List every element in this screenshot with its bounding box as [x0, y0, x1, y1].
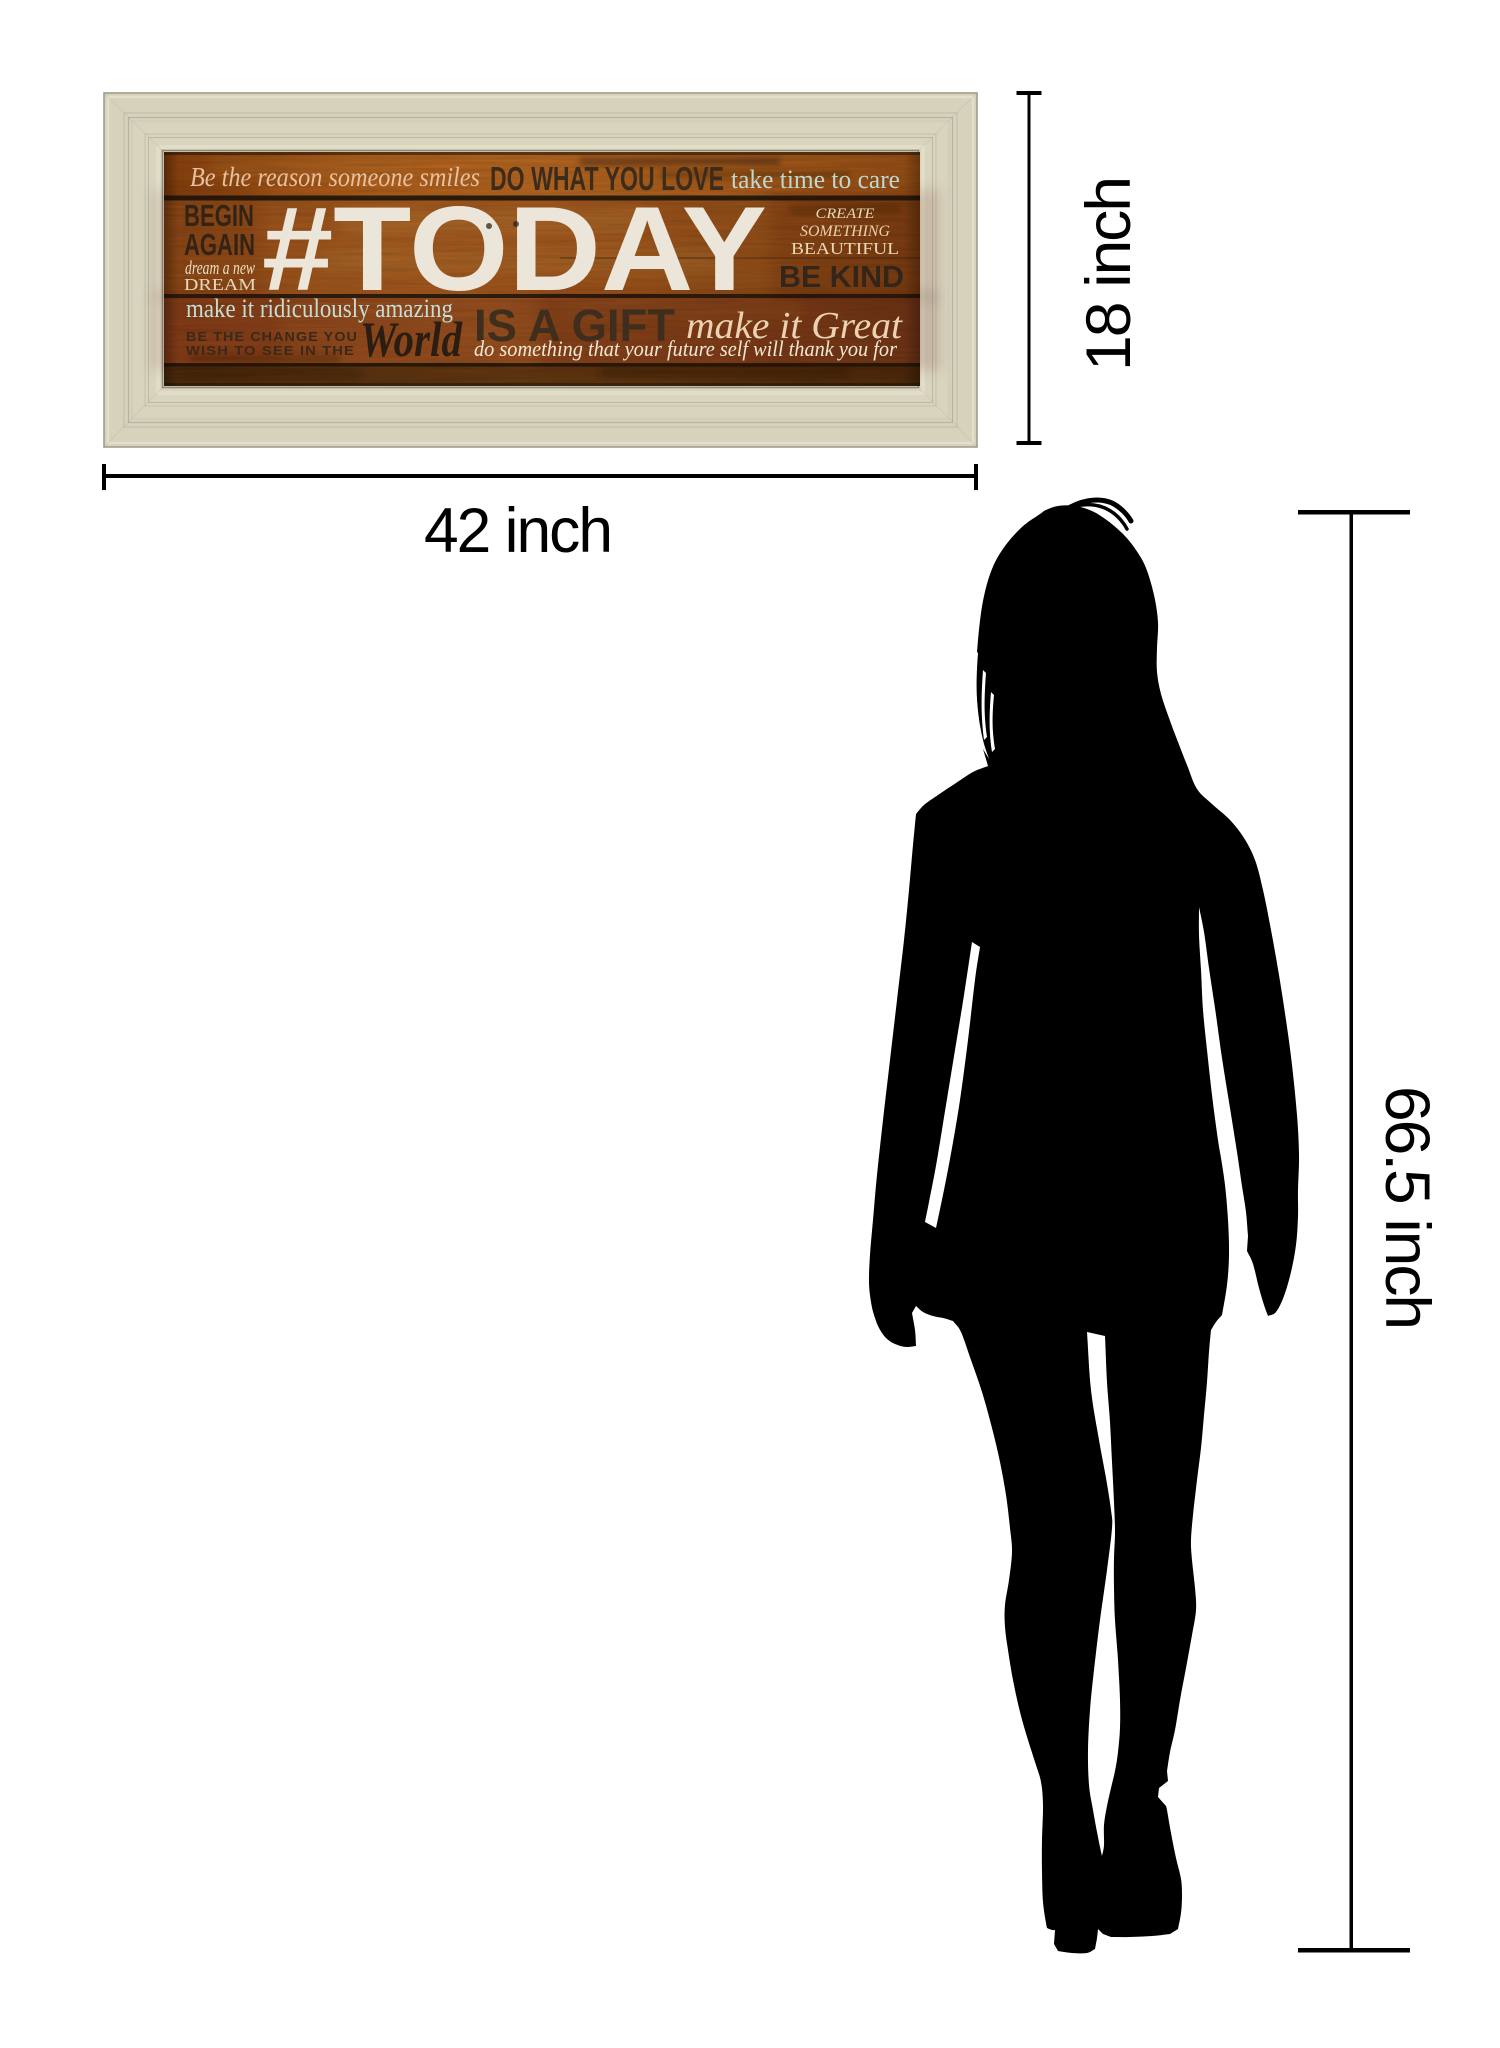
svg-text:WISH TO SEE IN THE: WISH TO SEE IN THE [186, 343, 355, 358]
svg-text:do something that your future: do something that your future self will … [474, 336, 897, 361]
svg-text:DREAM: DREAM [184, 275, 256, 294]
svg-text:World: World [360, 311, 463, 367]
svg-text:BE KIND: BE KIND [779, 259, 904, 294]
svg-text:BE THE CHANGE YOU: BE THE CHANGE YOU [186, 329, 358, 344]
svg-text:SOMETHING: SOMETHING [800, 223, 890, 240]
svg-text:66.5 inch: 66.5 inch [1372, 1086, 1442, 1328]
svg-text:CREATE: CREATE [816, 206, 875, 222]
svg-text:AGAIN: AGAIN [184, 227, 255, 262]
svg-text:BEAUTIFUL: BEAUTIFUL [791, 239, 899, 258]
svg-text:Marla: Marla [799, 367, 830, 381]
svg-text:42 inch: 42 inch [424, 496, 611, 566]
svg-text:18 inch: 18 inch [1074, 178, 1144, 371]
